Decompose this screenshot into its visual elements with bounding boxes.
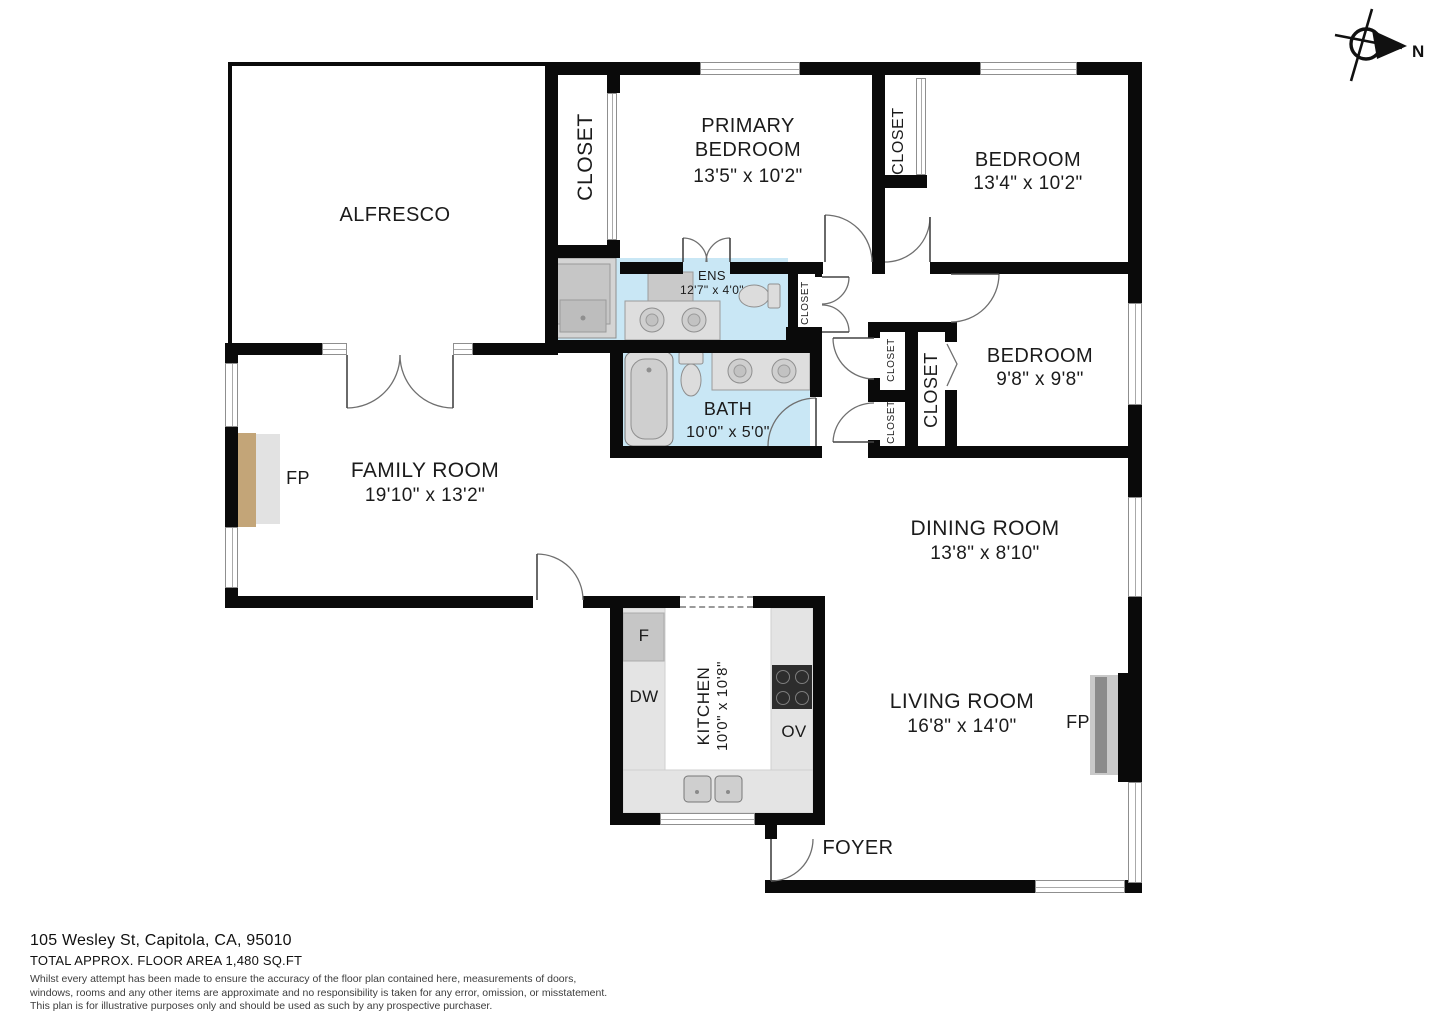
bifold-door [947,344,957,386]
door-arc [951,274,999,322]
door-arc [771,839,813,881]
door-arc [822,305,849,332]
floor-plan: N ALFRESCO PRIMARY BEDROOM 13'5" x 10'2"… [0,0,1440,1018]
north-arrow-icon: N [1335,9,1424,81]
door-arc [885,217,930,262]
doors-layer: N [0,0,1440,1018]
door-arc [822,277,849,304]
door-arc [833,338,874,379]
door-arc [347,355,400,408]
north-label: N [1412,42,1424,61]
door-arc [683,238,707,262]
door-arc [706,238,730,262]
door-arc [768,398,816,446]
door-arc [537,554,583,600]
door-arc [825,215,872,262]
door-arc [400,355,453,408]
door-arc [833,403,874,442]
